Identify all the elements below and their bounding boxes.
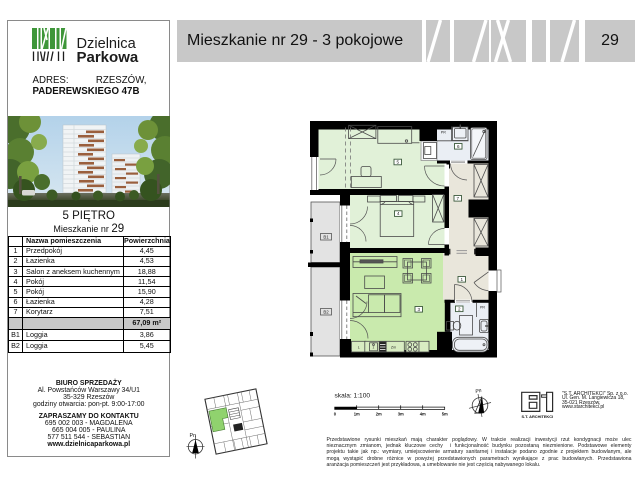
- svg-text:4: 4: [397, 211, 400, 216]
- svg-text:Pn: Pn: [475, 388, 483, 395]
- svg-text:5: 5: [397, 160, 400, 165]
- svg-text:0: 0: [334, 412, 337, 417]
- svg-text:3: 3: [418, 307, 421, 312]
- svg-text:B1: B1: [323, 235, 329, 240]
- svg-text:1: 1: [461, 277, 464, 282]
- svg-text:S.T. ARCHITEKCI: S.T. ARCHITEKCI: [522, 414, 554, 419]
- svg-text:5m: 5m: [442, 412, 448, 417]
- svg-text:2m: 2m: [376, 412, 382, 417]
- svg-text:Pn: Pn: [190, 433, 197, 439]
- svg-text:2: 2: [458, 306, 461, 311]
- svg-text:7: 7: [457, 196, 460, 201]
- svg-text:4m: 4m: [420, 412, 426, 417]
- svg-text:L: L: [358, 345, 360, 349]
- svg-text:PR: PR: [441, 131, 446, 135]
- svg-text:skala: 1:100: skala: 1:100: [335, 393, 371, 400]
- svg-text:z: z: [373, 345, 375, 349]
- svg-text:1m: 1m: [354, 412, 360, 417]
- svg-text:PR: PR: [480, 306, 485, 310]
- svg-text:6: 6: [457, 144, 460, 149]
- svg-text:B2: B2: [323, 310, 329, 315]
- svg-text:Zm: Zm: [391, 345, 396, 349]
- svg-text:3m: 3m: [398, 412, 404, 417]
